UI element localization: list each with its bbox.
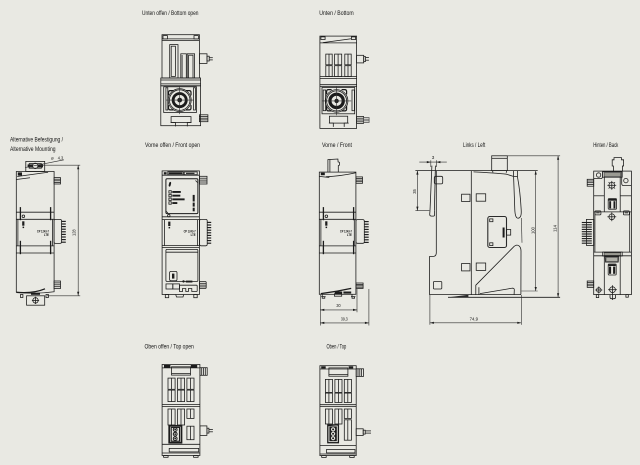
svg-text:4,3: 4,3 bbox=[58, 155, 64, 160]
svg-text:Links / Left: Links / Left bbox=[463, 143, 486, 149]
svg-text:128: 128 bbox=[72, 229, 77, 236]
svg-text:74,9: 74,9 bbox=[470, 316, 479, 321]
svg-text:Oben / Top: Oben / Top bbox=[327, 344, 347, 350]
svg-text:100: 100 bbox=[530, 227, 535, 234]
svg-text:3: 3 bbox=[432, 155, 435, 160]
svg-text:Alternative Mounting: Alternative Mounting bbox=[10, 147, 56, 153]
svg-text:Unten / Bottom: Unten / Bottom bbox=[319, 11, 354, 17]
svg-text:35: 35 bbox=[412, 189, 417, 194]
svg-text:LTE: LTE bbox=[191, 233, 197, 237]
svg-text:⌀: ⌀ bbox=[51, 155, 54, 160]
svg-text:Oben offen / Top open: Oben offen / Top open bbox=[145, 344, 194, 350]
svg-text:Hinten / Back: Hinten / Back bbox=[593, 143, 619, 149]
svg-text:Vorne / Front: Vorne / Front bbox=[322, 143, 352, 149]
svg-text:39,3: 39,3 bbox=[341, 316, 348, 321]
svg-text:Unten offen / Bottom open: Unten offen / Bottom open bbox=[142, 11, 199, 17]
svg-text:LTE: LTE bbox=[44, 233, 50, 237]
svg-text:114: 114 bbox=[553, 225, 558, 232]
svg-text:Vorne offen / Front open: Vorne offen / Front open bbox=[145, 143, 200, 149]
svg-text:Alternative Befestigung /: Alternative Befestigung / bbox=[10, 138, 63, 144]
svg-text:30: 30 bbox=[336, 303, 341, 308]
svg-text:LTE: LTE bbox=[347, 233, 353, 237]
